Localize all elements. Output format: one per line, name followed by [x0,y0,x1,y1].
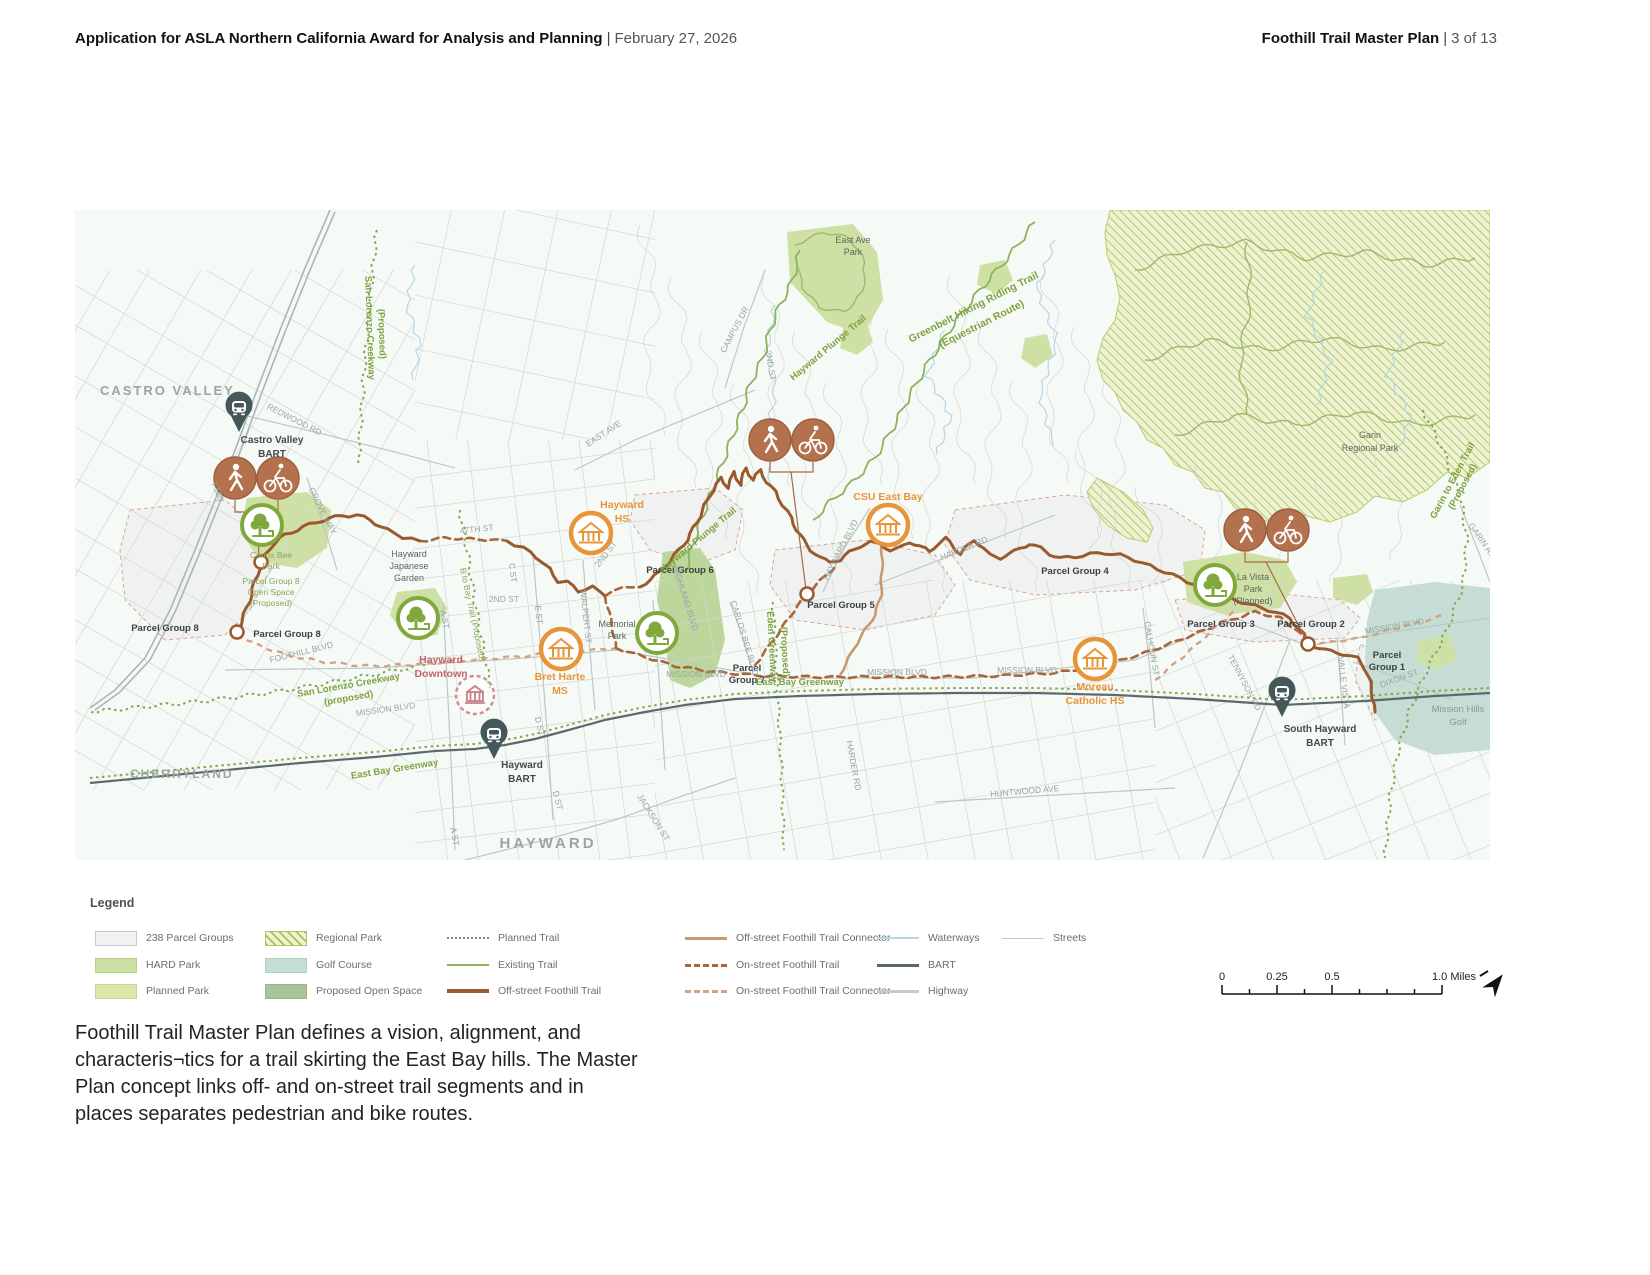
map-label: Regional Park [1342,443,1399,453]
legend-item: Waterways [877,929,980,947]
school-icon [1075,639,1115,679]
map-label: Park [1244,584,1263,594]
legend-label: Off-street Foothill Trail [498,985,601,997]
school-icon [868,505,908,545]
scale-end-label: 1.0 Miles [1432,971,1477,983]
header-left: Application for ASLA Northern California… [75,30,737,47]
map-label: Parcel Group 8 [131,623,199,634]
legend-title: Legend [90,896,134,910]
legend-item: On-street Foothill Trail Connector [685,982,891,1000]
caption-line: Plan concept links off- and on-street tr… [75,1074,755,1101]
map-label: BART [258,449,286,460]
legend-item: Planned Trail [447,929,559,947]
map-label: Mission Hills [1432,704,1485,715]
scale-tick-label: 0 [1219,971,1225,983]
tree-icon [242,505,282,545]
tree-icon [637,613,677,653]
map-label: South Hayward [1284,724,1357,735]
node-icon [801,588,814,601]
legend-item: Streets [1002,929,1086,947]
legend-label: 238 Parcel Groups [146,932,234,944]
legend-swatch [685,964,727,967]
map-label: Parcel [1373,650,1402,661]
legend-label: BART [928,959,956,971]
tree-icon [1195,565,1235,605]
legend-label: On-street Foothill Trail [736,959,839,971]
legend-swatch [877,990,919,993]
map-label: Catholic HS [1066,695,1125,707]
legend-item: BART [877,956,956,974]
map-label: Moreau [1076,681,1113,693]
legend-label: Off-street Foothill Trail Connector [736,932,890,944]
page-number: 3 of 13 [1451,30,1497,47]
legend-label: Golf Course [316,959,372,971]
legend-item: Golf Course [265,956,372,974]
map-label: Memorial [598,619,635,629]
legend-item: Existing Trail [447,956,558,974]
map-label: Park [608,631,627,641]
map-label: Garden [394,573,424,583]
tree-icon [398,598,438,638]
map-label: BART [1306,738,1334,749]
legend-label: Existing Trail [498,959,558,971]
map-label: Hayward [501,760,543,771]
bike-icon [257,457,299,499]
legend-label: Proposed Open Space [316,985,422,997]
legend-swatch [685,990,727,993]
legend-swatch [877,937,919,939]
legend-swatch [265,958,307,973]
node-icon [1302,638,1315,651]
legend-item: Off-street Foothill Trail [447,982,601,1000]
map-label: Hayward [419,654,463,666]
map-label: HAYWARD [499,835,596,852]
map-label: Garin [1359,430,1381,440]
map-label: Parcel Group 2 [1277,619,1345,630]
legend-label: Streets [1053,932,1086,944]
scale-bar: 00.250.51.0 Miles [1218,962,1528,1008]
map-label: Bret Harte [535,671,586,683]
trail-master-plan-map: CASTRO VALLEYCHERRYLANDHAYWARDCastro Val… [75,210,1490,860]
map-label: Hayward [391,549,427,559]
map-label: Park [844,247,863,257]
map-label: 2ND ST [489,594,519,604]
caption: Foothill Trail Master Plan defines a vis… [75,1020,755,1128]
legend-item: HARD Park [95,956,200,974]
scale-tick-label: 0.25 [1266,971,1287,983]
header-right: Foothill Trail Master Plan|3 of 13 [1262,30,1497,47]
map-label: Golf [1449,717,1467,728]
legend-item: Proposed Open Space [265,982,422,1000]
bike-icon [1267,509,1309,551]
legend-swatch [265,931,307,946]
map-label: Parcel Group 3 [1187,619,1255,630]
header-left-separator: | [603,30,615,47]
map-label: East Ave [835,235,870,245]
legend-label: Planned Park [146,985,209,997]
map-label: Carlos Bee [250,550,292,560]
map-label: Downtown [414,668,467,680]
map-label: Parcel Group 4 [1041,566,1109,577]
header-left-title: Application for ASLA Northern California… [75,30,603,47]
map-label: MISSION BLVD [666,669,726,679]
legend-item: Regional Park [265,929,382,947]
ped-icon [1224,509,1266,551]
legend-item: Off-street Foothill Trail Connector [685,929,890,947]
caption-line: Foothill Trail Master Plan defines a vis… [75,1020,755,1047]
legend-swatch [447,964,489,966]
map-label: La Vista [1237,572,1269,582]
map-label: Parcel Group 5 [807,600,875,611]
map-label: Castro Valley [241,435,304,446]
map-label: BART [508,774,536,785]
map-label: MISSION BLVD [997,665,1057,675]
legend-swatch [685,937,727,940]
map-label: Open Space [247,587,295,597]
header-date: February 27, 2026 [614,30,737,47]
legend-label: Waterways [928,932,980,944]
legend-item: 238 Parcel Groups [95,929,234,947]
caption-line: characteris¬tics for a trail skirting th… [75,1047,755,1074]
legend-swatch [447,989,489,993]
legend-swatch [877,964,919,967]
map-label: E ST [533,605,545,625]
legend-item: Planned Park [95,982,209,1000]
map-label: Japanese [389,561,428,571]
node-icon [231,626,244,639]
map-label: CHERRYLAND [130,767,234,781]
map-label: MS [552,685,568,697]
legend-label: Regional Park [316,932,382,944]
legend-item: Highway [877,982,968,1000]
map-label: Parcel Group 8 [253,629,321,640]
map-label: (Planned) [1233,596,1272,606]
map-label: (Proposed) [375,309,388,359]
map-label: CSU East Bay [853,491,923,503]
legend-swatch [265,984,307,999]
map-label: (Proposed) [250,598,292,608]
legend-label: HARD Park [146,959,200,971]
map-label: MISSION BLVD [867,667,927,677]
legend-swatch [95,931,137,946]
header-right-title: Foothill Trail Master Plan [1262,30,1440,47]
map-canvas: CASTRO VALLEYCHERRYLANDHAYWARDCastro Val… [75,210,1490,860]
legend-label: On-street Foothill Trail Connector [736,985,891,997]
map-label: HS [615,513,630,525]
header-right-separator: | [1439,30,1451,47]
legend-label: Planned Trail [498,932,559,944]
school-icon [541,629,581,669]
caption-line: places separates pedestrian and bike rou… [75,1101,755,1128]
legend-item: On-street Foothill Trail [685,956,839,974]
north-arrow-icon [1480,969,1509,997]
bike-icon [792,419,834,461]
map-label: Hayward [600,499,644,511]
downtown-icon [456,676,494,714]
scale-bar-svg: 00.250.51.0 Miles [1218,962,1528,1008]
map-label: Parcel Group 8 [242,576,299,586]
legend-swatch [1002,938,1044,939]
scale-tick-label: 0.5 [1324,971,1339,983]
legend-swatch [447,937,489,939]
legend-label: Highway [928,985,968,997]
ped-icon [749,419,791,461]
legend-swatch [95,958,137,973]
page: { "header": { "left": {"title": "Applica… [0,0,1650,1275]
map-label: Park [262,561,280,571]
map-label: CASTRO VALLEY [100,383,235,398]
legend-swatch [95,984,137,999]
